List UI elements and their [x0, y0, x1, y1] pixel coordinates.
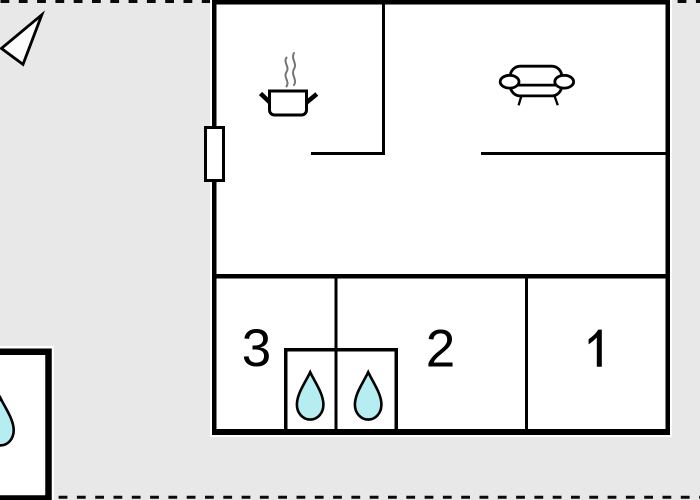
svg-text:3: 3 [242, 319, 271, 378]
svg-text:2: 2 [426, 320, 455, 379]
